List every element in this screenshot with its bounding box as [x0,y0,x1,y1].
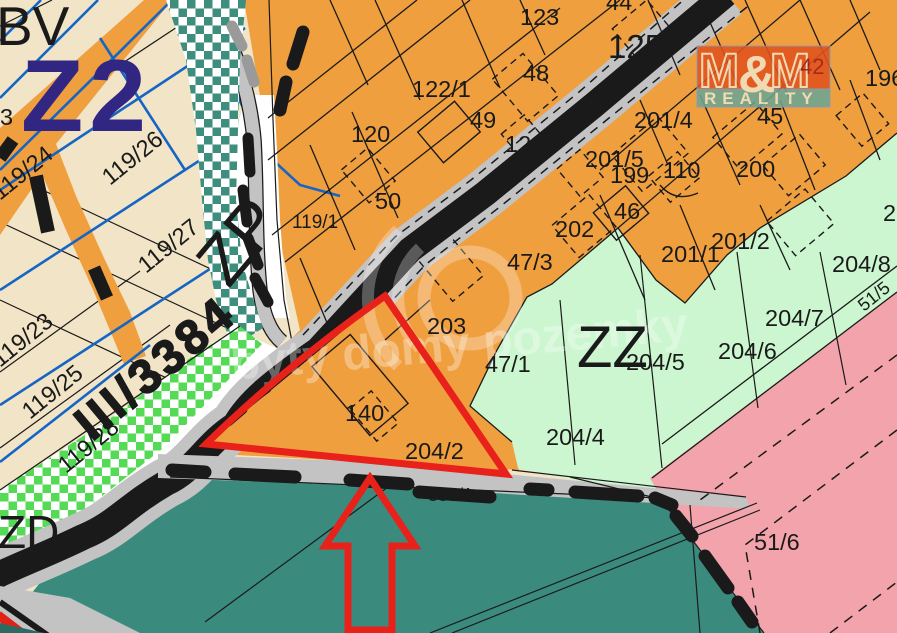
svg-text:46: 46 [614,198,640,224]
svg-text:204/2: 204/2 [405,438,464,464]
svg-text:204/6: 204/6 [718,338,777,364]
svg-text:200: 200 [736,156,775,182]
svg-text:44: 44 [606,0,632,15]
svg-text:Z2: Z2 [21,39,152,153]
svg-text:140: 140 [345,400,384,426]
svg-text:3: 3 [0,104,13,130]
svg-text:ZZ: ZZ [577,315,648,380]
svg-text:201/1: 201/1 [661,241,720,267]
svg-text:201/2: 201/2 [711,228,770,254]
svg-text:42: 42 [800,54,824,79]
svg-text:123: 123 [520,4,559,30]
svg-text:122/1: 122/1 [412,76,471,102]
svg-text:51/6: 51/6 [754,529,800,555]
svg-text:201/4: 201/4 [634,107,693,133]
svg-text:110: 110 [663,157,700,183]
svg-text:196: 196 [865,65,897,91]
svg-text:204/7: 204/7 [765,305,824,331]
svg-text:122: 122 [505,131,544,157]
svg-text:45: 45 [757,103,783,129]
svg-text:204/8: 204/8 [832,251,891,277]
svg-text:119/1: 119/1 [292,212,338,233]
svg-text:836/1: 836/1 [428,485,473,505]
svg-text:125: 125 [608,28,663,65]
svg-text:204/4: 204/4 [546,424,605,450]
svg-text:2: 2 [883,200,896,226]
svg-text:47/3: 47/3 [507,249,553,275]
svg-text:120: 120 [351,121,390,147]
svg-text:199: 199 [610,162,649,188]
svg-text:48: 48 [523,60,549,86]
svg-text:47/1: 47/1 [485,351,531,377]
svg-text:ZD: ZD [0,506,59,558]
svg-text:202: 202 [555,216,594,242]
svg-text:50: 50 [375,188,401,214]
svg-text:49: 49 [470,107,496,133]
svg-text:203: 203 [427,313,466,339]
